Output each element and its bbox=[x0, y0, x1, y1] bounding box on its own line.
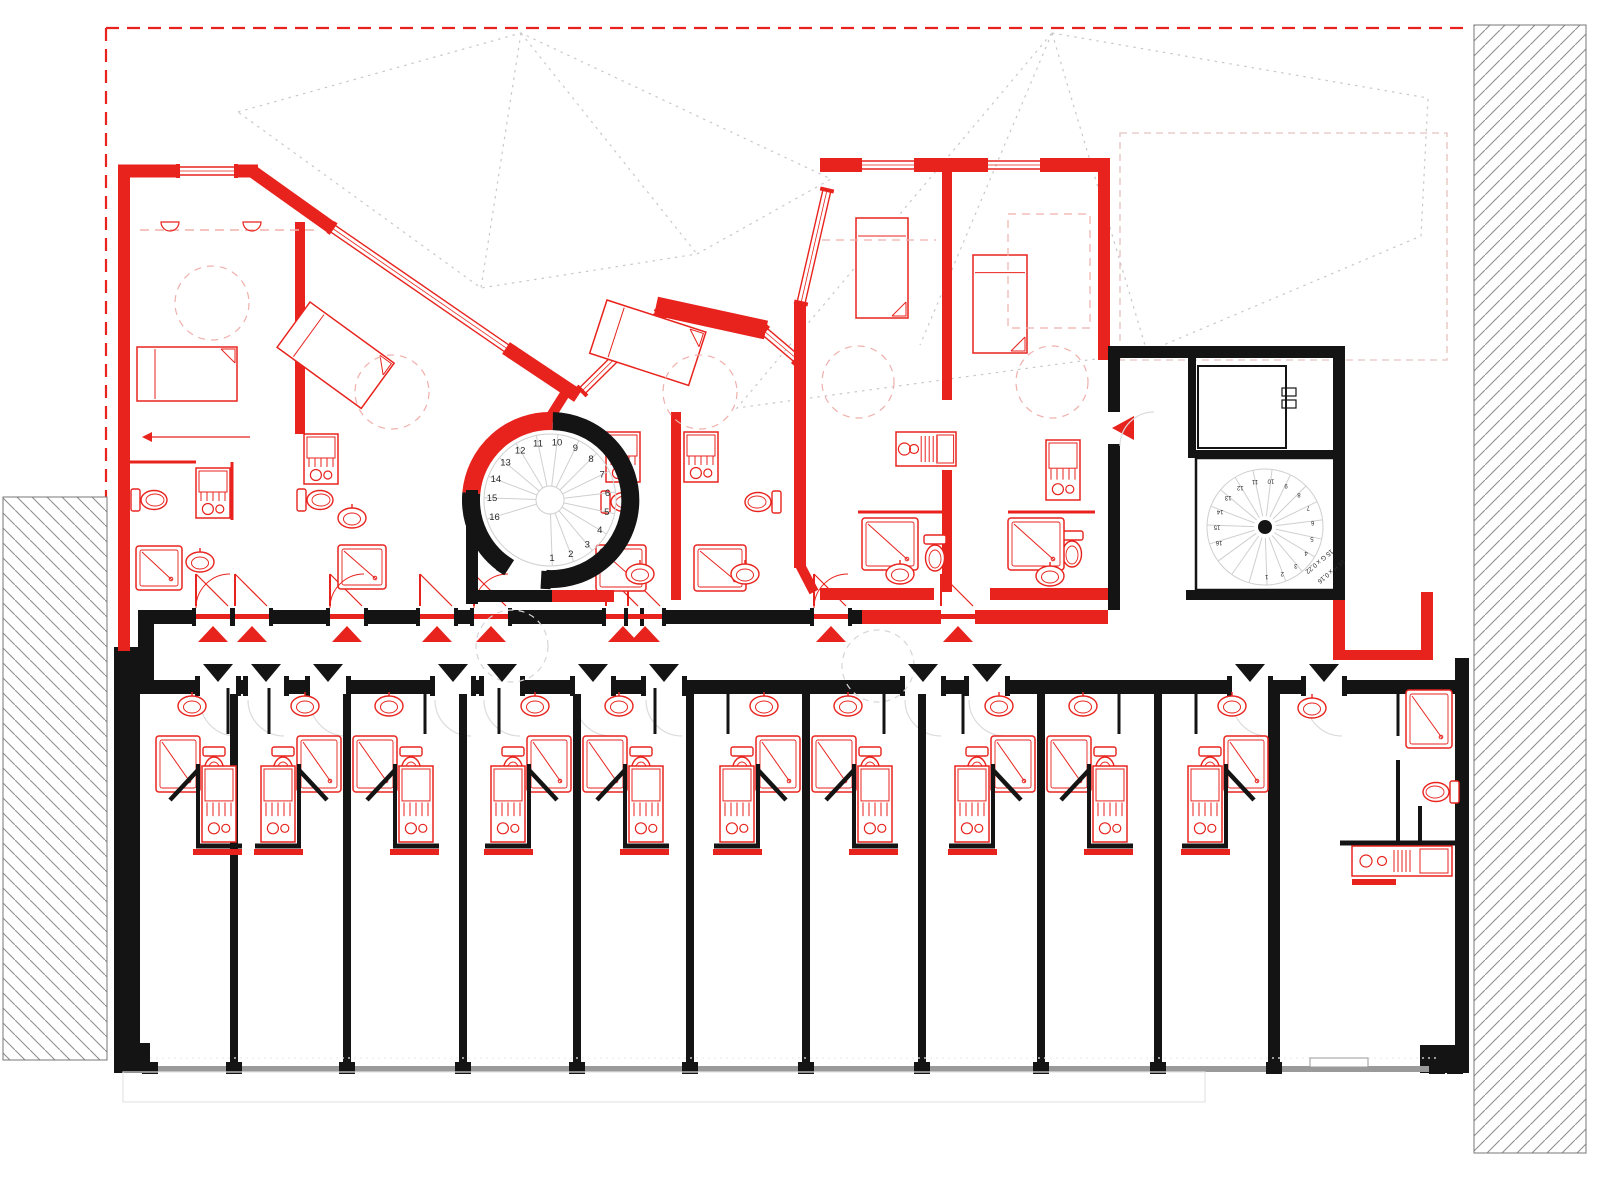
window-band-glazing bbox=[860, 158, 916, 172]
door-jamb bbox=[326, 608, 330, 626]
entrance-arrow-down bbox=[1235, 664, 1265, 682]
unit-partition-wall bbox=[686, 694, 694, 1066]
kitchenette-icon bbox=[399, 766, 433, 842]
door-jamb bbox=[1342, 676, 1347, 696]
entrance-arrow-up bbox=[476, 626, 506, 642]
stair-step-number: 2 bbox=[1280, 570, 1284, 576]
window-band-glazing bbox=[178, 164, 236, 178]
entrance-arrow-down bbox=[251, 664, 281, 682]
stair-step-number: 12 bbox=[515, 445, 526, 456]
stair-room-wall bbox=[466, 590, 552, 602]
roof-ridge-lines-left bbox=[481, 33, 697, 288]
corridor-wall-upper bbox=[662, 610, 814, 624]
corridor-wall-lower bbox=[682, 680, 905, 694]
kitchen-threshold bbox=[484, 849, 533, 855]
stair-step-number: 14 bbox=[491, 474, 502, 485]
kitchenette-icon bbox=[1046, 440, 1080, 500]
turning-circle bbox=[822, 346, 894, 418]
shower-icon bbox=[338, 545, 386, 589]
kitchen-threshold bbox=[193, 849, 242, 855]
door-jamb bbox=[470, 608, 474, 626]
kitchen-threshold bbox=[390, 849, 439, 855]
kitchenette-icon bbox=[1352, 846, 1452, 876]
door-jamb bbox=[520, 676, 525, 696]
stair-step-number: 13 bbox=[500, 458, 511, 469]
shower-icon bbox=[991, 736, 1035, 792]
entrance-arrow-up bbox=[422, 626, 452, 642]
entrance-arrow-up bbox=[237, 626, 267, 642]
shower-icon bbox=[812, 736, 856, 792]
kitchen-threshold bbox=[713, 849, 762, 855]
entrance-arrow-down bbox=[313, 664, 343, 682]
sink-icon bbox=[178, 692, 206, 716]
annex-wall-red bbox=[1333, 592, 1345, 660]
kitchen-threshold bbox=[1084, 849, 1133, 855]
corridor-wall-lower bbox=[520, 680, 575, 694]
toilet-icon bbox=[131, 489, 167, 511]
lower-unit bbox=[713, 688, 800, 855]
door-jamb bbox=[662, 608, 666, 626]
door-jamb bbox=[641, 676, 646, 696]
lower-unit bbox=[948, 688, 1035, 855]
corridor-end-wall bbox=[138, 610, 154, 694]
stair-step-number: 14 bbox=[1216, 508, 1223, 514]
door-jamb bbox=[624, 608, 628, 626]
door-threshold bbox=[330, 614, 364, 619]
roof-ridge-lines-right bbox=[920, 33, 1147, 352]
entrance-arrow-up bbox=[332, 626, 362, 642]
kitchenette-icon bbox=[261, 766, 295, 842]
corridor-wall-lower bbox=[346, 680, 435, 694]
door-threshold bbox=[814, 614, 848, 619]
door-leaf bbox=[420, 574, 452, 606]
lower-unit bbox=[583, 688, 669, 855]
neighbor-building-hatch-right bbox=[1474, 25, 1586, 1153]
window-band-glazing bbox=[794, 188, 834, 304]
door-jamb bbox=[479, 676, 484, 696]
stair-step-number: 5 bbox=[604, 507, 609, 518]
entrance-arrow-down bbox=[578, 664, 608, 682]
entrance-arrow-up bbox=[198, 626, 228, 642]
entrance-arrow-down bbox=[438, 664, 468, 682]
floor-plan: 1234567891011121314151612345678910111213… bbox=[0, 0, 1599, 1181]
door-jamb bbox=[602, 608, 606, 626]
shower-icon bbox=[1224, 736, 1268, 792]
toilet-icon bbox=[1423, 781, 1459, 803]
lower-unit bbox=[1047, 688, 1133, 855]
shower-icon bbox=[353, 736, 397, 792]
stair-step-number: 3 bbox=[1294, 562, 1298, 568]
bed-icon bbox=[277, 302, 394, 408]
corridor-wall-upper bbox=[364, 610, 420, 624]
turning-circle bbox=[1016, 346, 1088, 418]
turning-circle bbox=[175, 266, 249, 340]
corridor-wall-upper-red bbox=[975, 610, 1108, 624]
kitchenette-icon bbox=[720, 766, 754, 842]
kitchenette-icon bbox=[1188, 766, 1222, 842]
stair-step-number: 4 bbox=[597, 525, 602, 536]
lower-unit bbox=[1181, 688, 1268, 855]
door-jamb bbox=[1268, 676, 1273, 696]
corridor-wall-upper bbox=[269, 610, 330, 624]
unit-partition-wall bbox=[459, 694, 467, 1066]
shower-icon bbox=[1047, 736, 1091, 792]
entrance-arrow-up bbox=[630, 626, 660, 642]
lower-unit-end bbox=[1298, 688, 1459, 885]
shower-icon bbox=[297, 736, 341, 792]
door-jamb bbox=[284, 676, 289, 696]
entrance-arrow-down bbox=[203, 664, 233, 682]
toilet-icon bbox=[297, 489, 333, 511]
annex-wall bbox=[1108, 444, 1120, 610]
entrance-arrow-left bbox=[1112, 416, 1134, 440]
sink-icon bbox=[750, 692, 778, 716]
unit-partition-wall bbox=[918, 694, 926, 1066]
stair-step-number: 7 bbox=[599, 470, 604, 481]
entrance-arrow-up bbox=[943, 626, 973, 642]
sink-icon bbox=[1218, 692, 1246, 716]
stair-step-number: 6 bbox=[605, 488, 610, 499]
bed-icon bbox=[856, 218, 908, 318]
annex-wall-red bbox=[1421, 592, 1433, 660]
apartment-wall-red bbox=[506, 348, 578, 396]
door-jamb bbox=[231, 608, 235, 626]
shower-icon bbox=[756, 736, 800, 792]
stair-newel bbox=[536, 486, 564, 514]
kitchenette-icon bbox=[896, 432, 956, 466]
annex-wall bbox=[1188, 358, 1196, 454]
door-jamb bbox=[570, 676, 575, 696]
door-jamb bbox=[192, 608, 196, 626]
kitchen-threshold bbox=[254, 849, 303, 855]
stair-step-number: 6 bbox=[1310, 519, 1314, 525]
stair-step-number: 16 bbox=[489, 512, 500, 523]
shower-icon bbox=[527, 736, 571, 792]
stair-step-number: 3 bbox=[585, 539, 590, 550]
kitchenette-icon bbox=[304, 434, 338, 484]
kitchenette-icon bbox=[1093, 766, 1127, 842]
shower-icon bbox=[136, 546, 182, 590]
shower-icon bbox=[862, 518, 918, 570]
door-jamb bbox=[346, 676, 351, 696]
kitchen-threshold bbox=[1352, 879, 1396, 885]
right-stairwell-annex bbox=[1108, 346, 1433, 660]
door-jamb bbox=[682, 676, 687, 696]
door-jamb bbox=[941, 676, 946, 696]
stair-step-number: 8 bbox=[588, 454, 593, 465]
floor-plan-svg: 1234567891011121314151612345678910111213… bbox=[0, 0, 1599, 1181]
stair-step-number: 10 bbox=[1267, 477, 1274, 483]
corridor-wall-upper-red bbox=[862, 610, 941, 624]
kitchen-threshold bbox=[948, 849, 997, 855]
lower-unit bbox=[812, 688, 898, 855]
sink-icon bbox=[1298, 694, 1326, 718]
door-jamb bbox=[964, 676, 969, 696]
door-jamb bbox=[236, 676, 241, 696]
entrance-arrows bbox=[198, 626, 1339, 682]
door-jamb bbox=[541, 571, 552, 589]
stair-step-number: 9 bbox=[573, 443, 578, 454]
sink-icon bbox=[338, 504, 366, 528]
entrance-arrow-down bbox=[908, 664, 938, 682]
unit-partition-wall bbox=[1268, 694, 1280, 1066]
unit-partition-wall bbox=[573, 694, 581, 1066]
entrance-arrow-down bbox=[649, 664, 679, 682]
door-swing-arc bbox=[1120, 412, 1154, 446]
stair-step-number: 5 bbox=[1310, 535, 1314, 541]
window-pier bbox=[1429, 1062, 1445, 1074]
window-pier bbox=[1447, 1062, 1463, 1074]
door-threshold bbox=[196, 614, 230, 619]
annex-wall-red bbox=[1333, 650, 1433, 660]
door-jamb bbox=[269, 608, 273, 626]
door-jamb bbox=[1227, 676, 1232, 696]
door-threshold bbox=[941, 614, 975, 619]
kitchenette-icon bbox=[955, 766, 989, 842]
door-jamb bbox=[243, 676, 248, 696]
door-swing-arc bbox=[646, 700, 682, 736]
kitchen-threshold bbox=[849, 849, 898, 855]
roof-dashed-rect bbox=[1120, 133, 1447, 360]
stair-newel-post bbox=[1258, 520, 1272, 534]
corridor-wall-lower bbox=[150, 680, 200, 694]
entrance-arrow-down bbox=[972, 664, 1002, 682]
stair-step-number: 11 bbox=[1251, 478, 1258, 484]
terrace-outline bbox=[123, 1072, 1205, 1102]
corridor-wall-lower bbox=[1268, 680, 1306, 694]
upper-apartments bbox=[118, 158, 1110, 651]
lower-room-band bbox=[114, 574, 1469, 1102]
lower-unit bbox=[254, 688, 341, 855]
exterior-wall-left bbox=[114, 647, 140, 1043]
entrance-arrow-down bbox=[487, 664, 517, 682]
kitchenette-icon bbox=[196, 468, 230, 518]
door-jamb bbox=[900, 676, 905, 696]
door-jamb bbox=[1301, 676, 1306, 696]
door-jamb bbox=[364, 608, 368, 626]
annex-wall bbox=[1186, 590, 1345, 600]
unit-partition-wall bbox=[802, 694, 810, 1066]
shower-icon bbox=[583, 736, 627, 792]
kitchenette-icon bbox=[629, 766, 663, 842]
door-jamb bbox=[848, 608, 852, 626]
site-context bbox=[3, 25, 1586, 1153]
door-threshold bbox=[420, 614, 454, 619]
door-swing-arc bbox=[484, 700, 520, 736]
elevator-shaft bbox=[1198, 366, 1286, 448]
stair-tread bbox=[1266, 469, 1272, 516]
lower-unit bbox=[484, 688, 571, 855]
door-threshold bbox=[235, 614, 269, 619]
roof-outline-left bbox=[238, 33, 831, 288]
door-leaf bbox=[235, 574, 267, 606]
stair-step-number: 1 bbox=[1264, 573, 1268, 579]
stair-step-number: 1 bbox=[549, 553, 554, 564]
direction-arrow-head bbox=[142, 432, 152, 442]
kitchenette-icon bbox=[858, 766, 892, 842]
door-swing-arc bbox=[248, 700, 284, 736]
corridor-wall-lower bbox=[611, 680, 646, 694]
shower-icon bbox=[156, 736, 200, 792]
stair-step-number: 11 bbox=[533, 438, 543, 449]
stair-step-number: 16 bbox=[1215, 539, 1222, 545]
door-threshold bbox=[628, 614, 662, 619]
bed-icon bbox=[137, 347, 237, 401]
door-jamb bbox=[416, 608, 420, 626]
door-jamb bbox=[454, 608, 458, 626]
toilet-icon bbox=[924, 535, 946, 571]
apartment-wall-red bbox=[252, 171, 332, 228]
unit-partition-wall bbox=[343, 694, 351, 1066]
stair-step-number: 10 bbox=[552, 437, 563, 448]
corridor-wall-upper bbox=[150, 610, 196, 624]
door-jamb bbox=[810, 608, 814, 626]
entrance-arrow-up bbox=[816, 626, 846, 642]
kitchenette-icon bbox=[684, 432, 718, 482]
annex-wall bbox=[1108, 358, 1120, 412]
stair-room-wall bbox=[466, 490, 478, 604]
unit-partition-wall bbox=[1154, 694, 1162, 1066]
stair-step-number: 15 bbox=[487, 493, 498, 504]
annex-wall bbox=[1108, 346, 1345, 358]
stair-tread bbox=[1273, 486, 1306, 519]
window-pier bbox=[1266, 1062, 1282, 1074]
stair-tread bbox=[1249, 538, 1262, 583]
sink-icon bbox=[186, 548, 214, 572]
neighbor-building-hatch-left bbox=[3, 497, 107, 1060]
kitchen-threshold bbox=[1181, 849, 1230, 855]
door-jamb bbox=[1005, 676, 1010, 696]
bed-icon bbox=[973, 255, 1027, 353]
lower-unit bbox=[353, 688, 439, 855]
sink-icon bbox=[1069, 692, 1097, 716]
entrance-arrow-down bbox=[1309, 664, 1339, 682]
door-jamb bbox=[471, 676, 476, 696]
stair-tread bbox=[1276, 520, 1323, 526]
window-symbol bbox=[1310, 1058, 1368, 1067]
sink-icon bbox=[605, 692, 633, 716]
stair-step-number: 12 bbox=[1236, 484, 1243, 490]
exterior-wall-right bbox=[1455, 658, 1469, 1050]
sink-icon bbox=[375, 692, 403, 716]
door-jamb bbox=[305, 676, 310, 696]
sink-icon bbox=[521, 692, 549, 716]
stair-step-number: 15 bbox=[1213, 523, 1220, 529]
door-jamb bbox=[430, 676, 435, 696]
window-band-glazing bbox=[986, 158, 1042, 172]
stair-step-number: 8 bbox=[1297, 491, 1301, 497]
sink-icon bbox=[291, 692, 319, 716]
stair-step-number: 2 bbox=[568, 549, 573, 560]
lower-unit bbox=[156, 688, 242, 855]
shower-icon bbox=[1406, 690, 1452, 748]
kitchenette-icon bbox=[491, 766, 525, 842]
toilet-icon bbox=[745, 491, 781, 513]
stair-room-wall-red bbox=[552, 590, 614, 602]
unit-partition-wall bbox=[1037, 694, 1045, 1066]
door-jamb bbox=[195, 676, 200, 696]
unit-partition-wall bbox=[230, 694, 238, 1066]
shower-icon bbox=[1008, 518, 1064, 570]
kitchenette-icon bbox=[202, 766, 236, 842]
stair-step-number: 13 bbox=[1224, 494, 1231, 500]
spiral-stair-right: 12345678910111213141516 bbox=[1196, 458, 1338, 590]
apartment-wall-red bbox=[800, 565, 814, 592]
kitchen-threshold bbox=[620, 849, 669, 855]
door-jamb bbox=[611, 676, 616, 696]
